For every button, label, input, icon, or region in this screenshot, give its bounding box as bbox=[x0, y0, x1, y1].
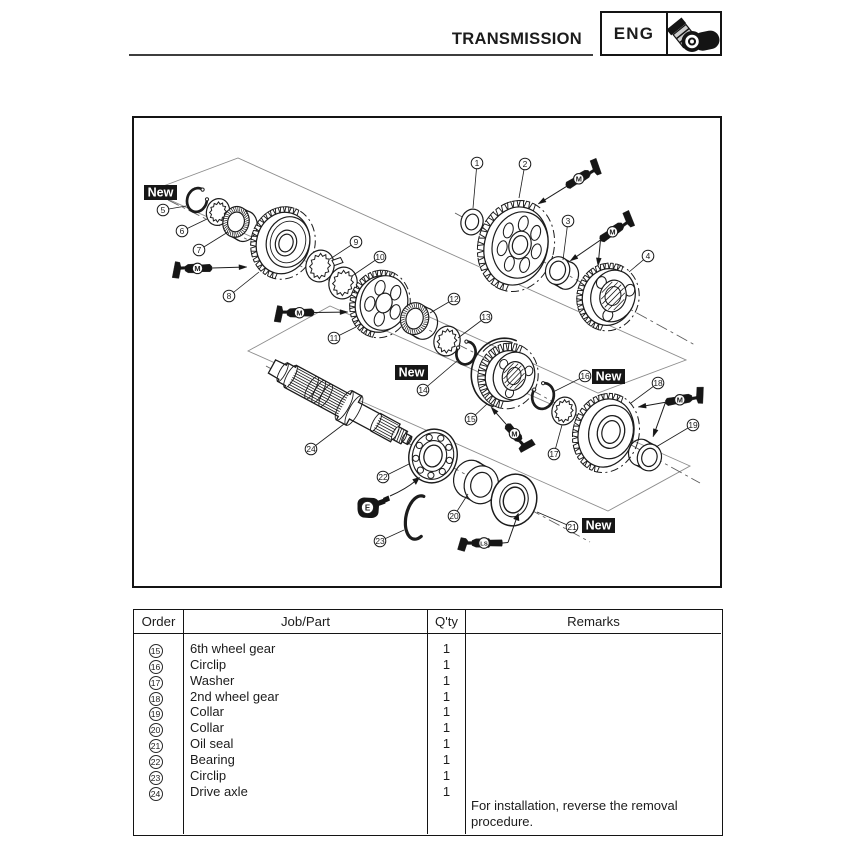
svg-text:18: 18 bbox=[653, 378, 663, 388]
svg-text:16: 16 bbox=[580, 371, 590, 381]
svg-text:15: 15 bbox=[466, 414, 476, 424]
svg-text:M: M bbox=[576, 174, 582, 183]
svg-text:13: 13 bbox=[481, 312, 491, 322]
svg-text:M: M bbox=[609, 227, 615, 236]
svg-text:New: New bbox=[596, 369, 622, 383]
svg-text:New: New bbox=[148, 185, 174, 199]
svg-text:4: 4 bbox=[646, 251, 651, 261]
svg-text:6: 6 bbox=[180, 226, 185, 236]
svg-text:E: E bbox=[365, 503, 371, 512]
svg-text:2: 2 bbox=[523, 159, 528, 169]
svg-text:24: 24 bbox=[306, 444, 316, 454]
svg-text:17: 17 bbox=[549, 449, 559, 459]
svg-text:11: 11 bbox=[330, 333, 339, 343]
svg-text:New: New bbox=[586, 518, 612, 532]
svg-text:5: 5 bbox=[161, 205, 166, 215]
svg-text:M: M bbox=[194, 264, 200, 273]
svg-text:New: New bbox=[399, 365, 425, 379]
svg-text:M: M bbox=[296, 308, 302, 317]
svg-text:22: 22 bbox=[378, 472, 388, 482]
svg-text:M: M bbox=[511, 429, 517, 438]
svg-text:7: 7 bbox=[197, 245, 202, 255]
svg-text:14: 14 bbox=[418, 385, 428, 395]
svg-text:3: 3 bbox=[566, 216, 571, 226]
svg-text:8: 8 bbox=[227, 291, 232, 301]
svg-text:12: 12 bbox=[449, 294, 459, 304]
svg-text:LS: LS bbox=[480, 541, 488, 547]
svg-text:9: 9 bbox=[354, 237, 359, 247]
svg-text:23: 23 bbox=[375, 536, 385, 546]
svg-text:1: 1 bbox=[475, 158, 480, 168]
svg-text:19: 19 bbox=[688, 420, 698, 430]
svg-text:M: M bbox=[677, 395, 683, 404]
svg-text:20: 20 bbox=[449, 511, 459, 521]
svg-text:21: 21 bbox=[567, 522, 577, 532]
svg-text:10: 10 bbox=[375, 252, 385, 262]
